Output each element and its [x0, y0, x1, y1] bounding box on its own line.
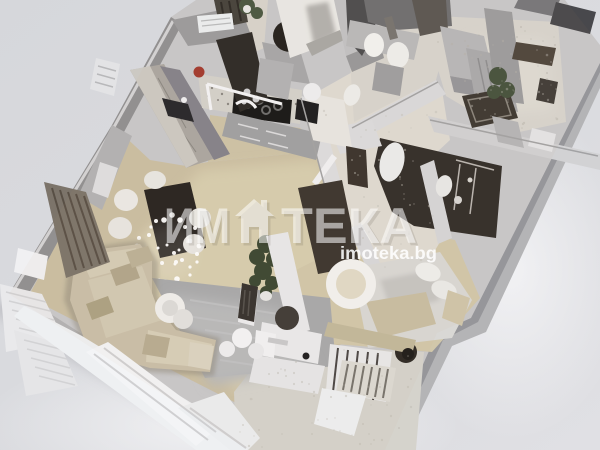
svg-text:ИМ: ИМ — [164, 198, 230, 254]
svg-text:imoteka.bg: imoteka.bg — [340, 243, 437, 263]
